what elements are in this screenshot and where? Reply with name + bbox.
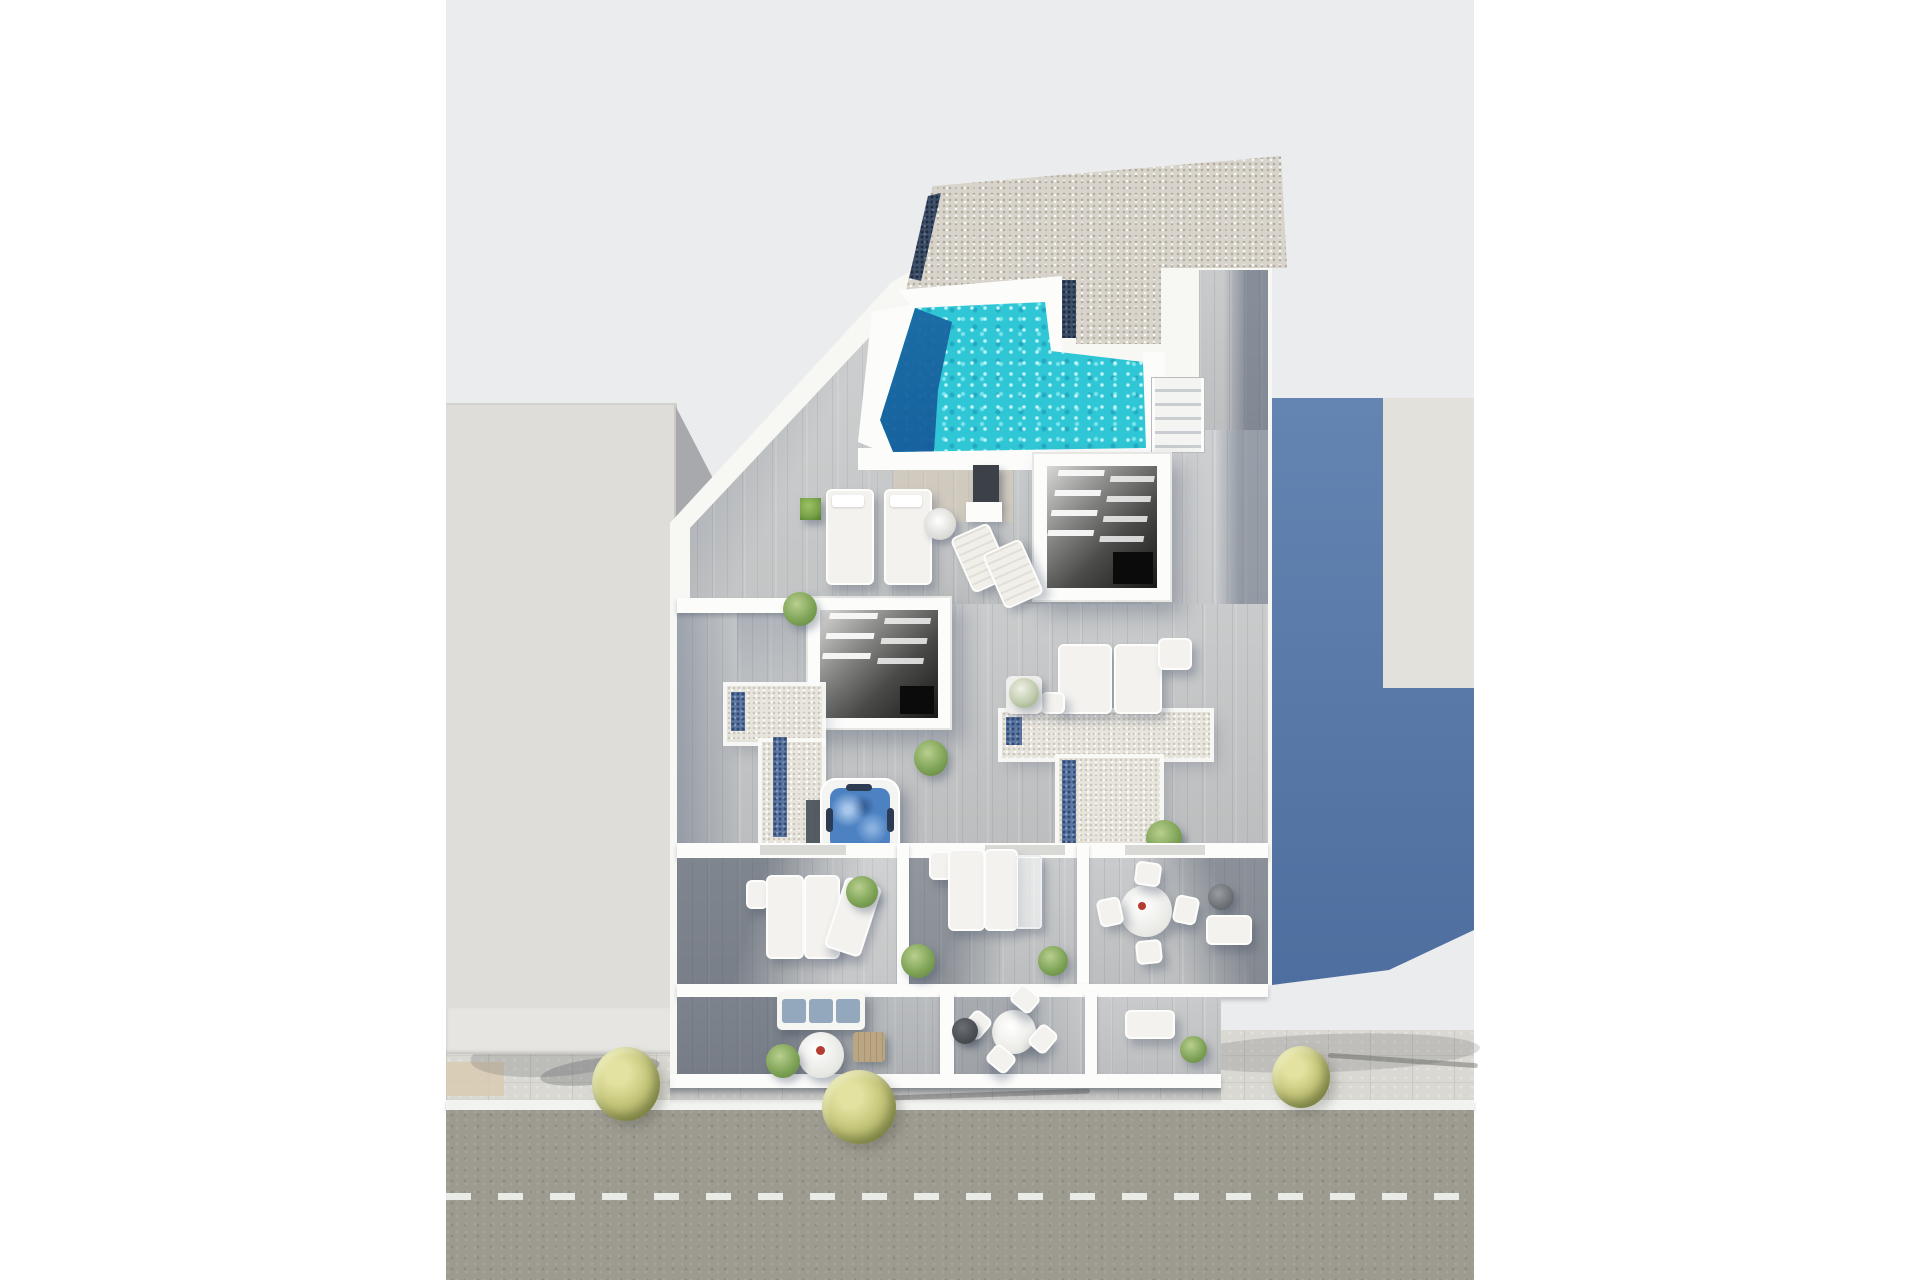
daybed [984, 849, 1018, 931]
jacuzzi-seat-notch [887, 808, 894, 832]
road-center-dashed-line [446, 1193, 1474, 1200]
potted-plant [901, 944, 935, 978]
outdoor-sofa [777, 992, 865, 1030]
atrium-2-void [820, 610, 938, 718]
stairwell-louvers [875, 618, 931, 676]
balcony-table [1125, 1010, 1175, 1039]
dining-chair [1135, 939, 1163, 966]
sidewalk-tan-pavers [446, 1062, 504, 1096]
glass-table [1015, 855, 1042, 929]
sun-lounger [884, 489, 932, 585]
mosaic-strip [1062, 760, 1076, 848]
mosaic-strip [773, 737, 787, 837]
lounge-chair [1206, 915, 1252, 945]
shade-overlay [947, 997, 1221, 1077]
shade-overlay [1199, 270, 1268, 446]
lounger-pillow [890, 495, 922, 507]
dark-plant-pot [952, 1018, 978, 1044]
sofa-cushion [809, 999, 833, 1023]
planter-cube [800, 498, 821, 520]
atrium-1-void [1047, 466, 1157, 588]
rooms-south-wall [677, 984, 1268, 997]
window-opening [1125, 845, 1205, 855]
potted-plant [1038, 946, 1068, 976]
sun-lounger [826, 489, 874, 585]
mosaic-strip [731, 692, 745, 731]
stairwell-louvers [1047, 470, 1105, 536]
street-tree [592, 1047, 660, 1121]
dining-table-round [1120, 885, 1172, 937]
decor-bowl-red [816, 1046, 825, 1055]
coffee-table-round [798, 1032, 844, 1078]
potted-plant [783, 592, 817, 626]
roof-gutter-notch [1062, 280, 1076, 338]
teak-side-table [853, 1032, 885, 1062]
white-flower-plant [1009, 678, 1039, 708]
roof-corridor-deck [1199, 270, 1268, 446]
potted-plant [846, 876, 878, 908]
outdoor-shower-panel [973, 465, 999, 505]
potted-plant [766, 1044, 800, 1078]
render-canvas [0, 0, 1920, 1280]
stairwell-louvers [1099, 476, 1155, 542]
neighbor-building-left [446, 403, 677, 1054]
jacuzzi-water [830, 788, 890, 850]
sofa-cushion [782, 999, 806, 1023]
jacuzzi-step [806, 800, 820, 844]
gravel-terrace-right-bar [1002, 712, 1210, 758]
room-divider-wall [1077, 843, 1089, 997]
neighbor-building-right-sunlit-roof [1383, 398, 1474, 688]
dining-chair [1133, 860, 1162, 887]
atrium-2-dark-corner [900, 686, 934, 714]
stairwell-louvers [820, 613, 878, 671]
sofa-cushion [836, 999, 860, 1023]
sun-lounger [1114, 644, 1162, 714]
potted-plant [914, 740, 948, 776]
lounger-pillow [832, 495, 864, 507]
balcony-divider-wall [1085, 992, 1097, 1080]
street-tree [1272, 1046, 1330, 1108]
side-table [746, 880, 768, 909]
side-table [1041, 692, 1065, 714]
skylight-atrium-1 [1032, 452, 1172, 602]
atrium-1-dark-corner [1113, 552, 1153, 584]
street-tree [822, 1070, 896, 1144]
mosaic-strip [1006, 717, 1022, 745]
round-side-table [924, 508, 956, 540]
pool-stairs [1152, 378, 1204, 452]
side-table [1158, 638, 1192, 670]
daybed [948, 849, 985, 931]
balcony-divider-wall [940, 992, 954, 1080]
jacuzzi-seat-notch [846, 784, 872, 791]
sun-lounger [1058, 644, 1112, 714]
ottoman [1208, 884, 1234, 910]
neighbor-left-street-face [446, 1008, 677, 1054]
jacuzzi-seat-notch [826, 808, 833, 832]
outdoor-shower-base [966, 502, 1002, 522]
skylight-atrium-2 [806, 596, 952, 730]
balcony-front-wall [670, 1074, 1221, 1088]
daybed [766, 875, 804, 959]
window-opening [760, 845, 846, 855]
potted-plant [1180, 1036, 1207, 1063]
dining-table-dishes [1138, 902, 1146, 910]
